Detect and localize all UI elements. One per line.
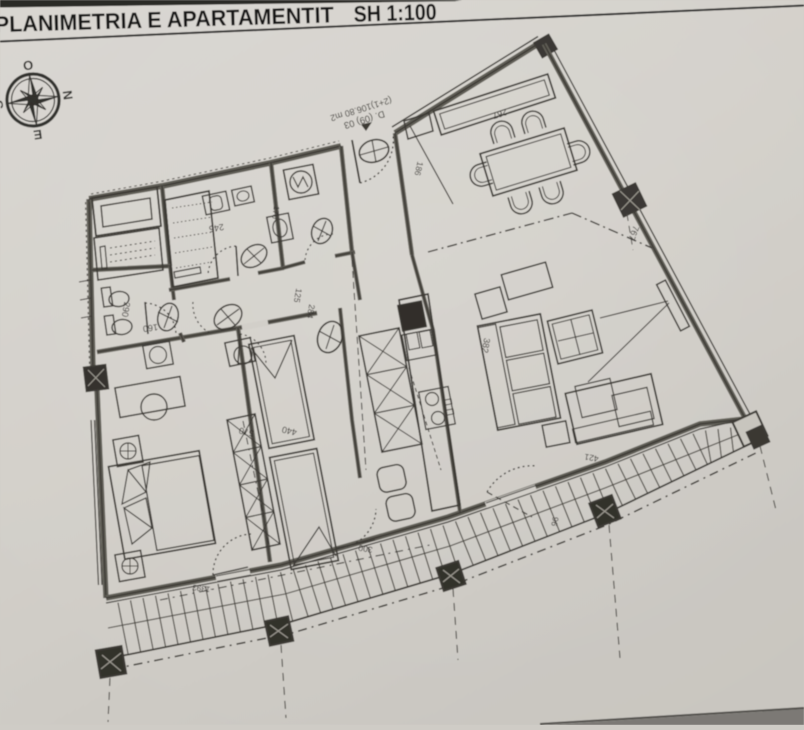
svg-text:SH 1:100: SH 1:100 [353,0,437,27]
svg-text:O: O [22,57,34,73]
svg-text:160: 160 [142,322,158,334]
svg-text:96: 96 [549,516,561,527]
